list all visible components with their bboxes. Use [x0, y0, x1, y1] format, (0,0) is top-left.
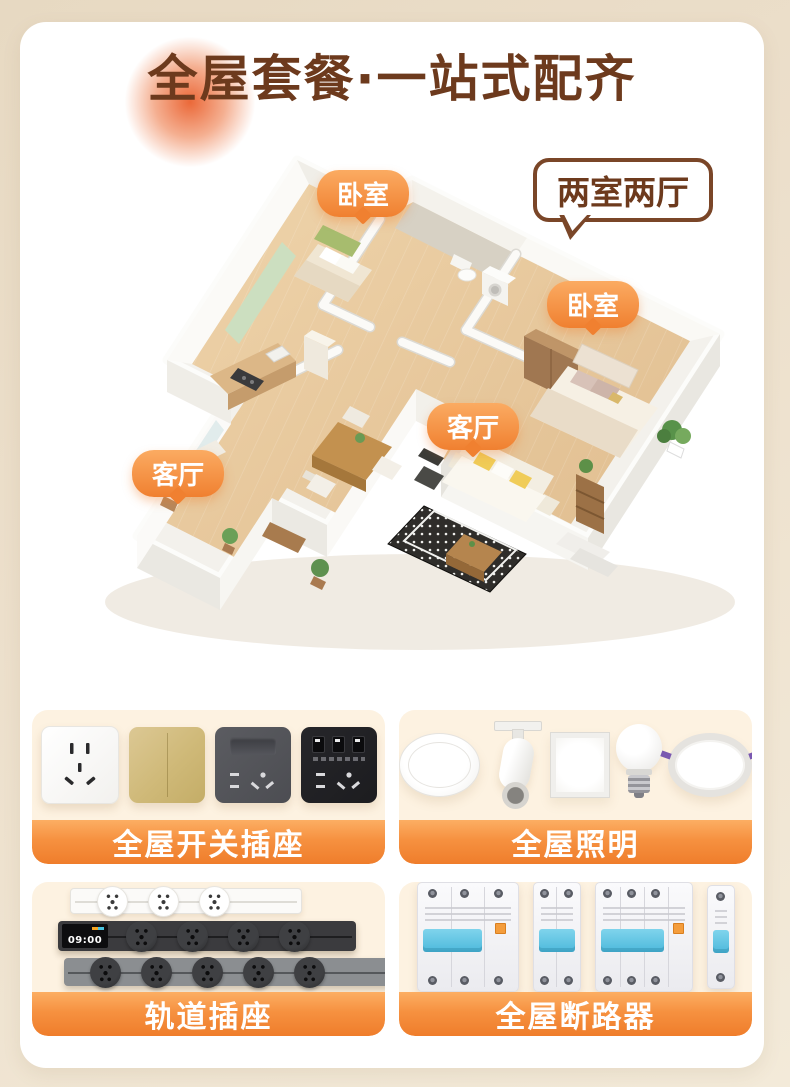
- card-switches-sockets[interactable]: 全屋开关插座: [32, 710, 385, 864]
- room-label-living-1: 客厅: [427, 403, 519, 450]
- white-power-track: [70, 888, 302, 914]
- track-spotlight: [486, 721, 544, 809]
- usb-ports: [301, 736, 377, 753]
- banner-lighting[interactable]: 全屋照明: [399, 820, 752, 864]
- white-five-hole-socket: [41, 726, 119, 804]
- banner-switches-sockets[interactable]: 全屋开关插座: [32, 820, 385, 864]
- breaker-images: [399, 882, 752, 992]
- room-label-bedroom-1: 卧室: [317, 170, 409, 217]
- breaker-2p-rcbo-wide: [417, 882, 519, 992]
- title-section: 全屋套餐·一站式配齐: [20, 52, 764, 107]
- promo-page-background: 全屋套餐·一站式配齐: [0, 0, 790, 1087]
- breaker-2p: [533, 882, 581, 992]
- card-circuit-breakers[interactable]: 全屋断路器: [399, 882, 752, 1036]
- led-bulb: [616, 724, 662, 806]
- card-lighting[interactable]: 全屋照明: [399, 710, 752, 864]
- switch-socket-images: [32, 710, 385, 820]
- promo-panel: 全屋套餐·一站式配齐: [20, 22, 764, 1068]
- dark-power-track-with-screen: 09:00: [58, 921, 356, 951]
- page-title: 全屋套餐·一站式配齐: [20, 52, 764, 107]
- card-track-sockets[interactable]: 09:00 轨道插座: [32, 882, 385, 1036]
- rocker-button: [230, 737, 276, 755]
- banner-track-sockets[interactable]: 轨道插座: [32, 992, 385, 1036]
- room-label-bedroom-2: 卧室: [547, 281, 639, 328]
- gray-power-track: [64, 958, 385, 986]
- layout-type-bubble: 两室两厅: [533, 158, 713, 222]
- gold-double-rocker-switch: [129, 727, 205, 803]
- banner-circuit-breakers[interactable]: 全屋断路器: [399, 992, 752, 1036]
- downlight: [668, 733, 752, 797]
- usb-label-text: [313, 757, 365, 761]
- ceiling-light: [399, 733, 480, 797]
- breaker-1p: [707, 885, 735, 989]
- panel-light: [550, 732, 610, 798]
- gray-switch-with-socket: [215, 727, 291, 803]
- lighting-images: [399, 710, 752, 820]
- black-usb-socket: [301, 727, 377, 803]
- breaker-3p-rcbo: [595, 882, 693, 992]
- floorplan-illustration: [20, 140, 764, 700]
- track-clock-screen: 09:00: [62, 924, 108, 948]
- room-label-living-2: 客厅: [132, 450, 224, 497]
- product-category-grid: 全屋开关插座 全屋照明: [32, 710, 752, 1036]
- track-socket-images: 09:00: [32, 882, 385, 992]
